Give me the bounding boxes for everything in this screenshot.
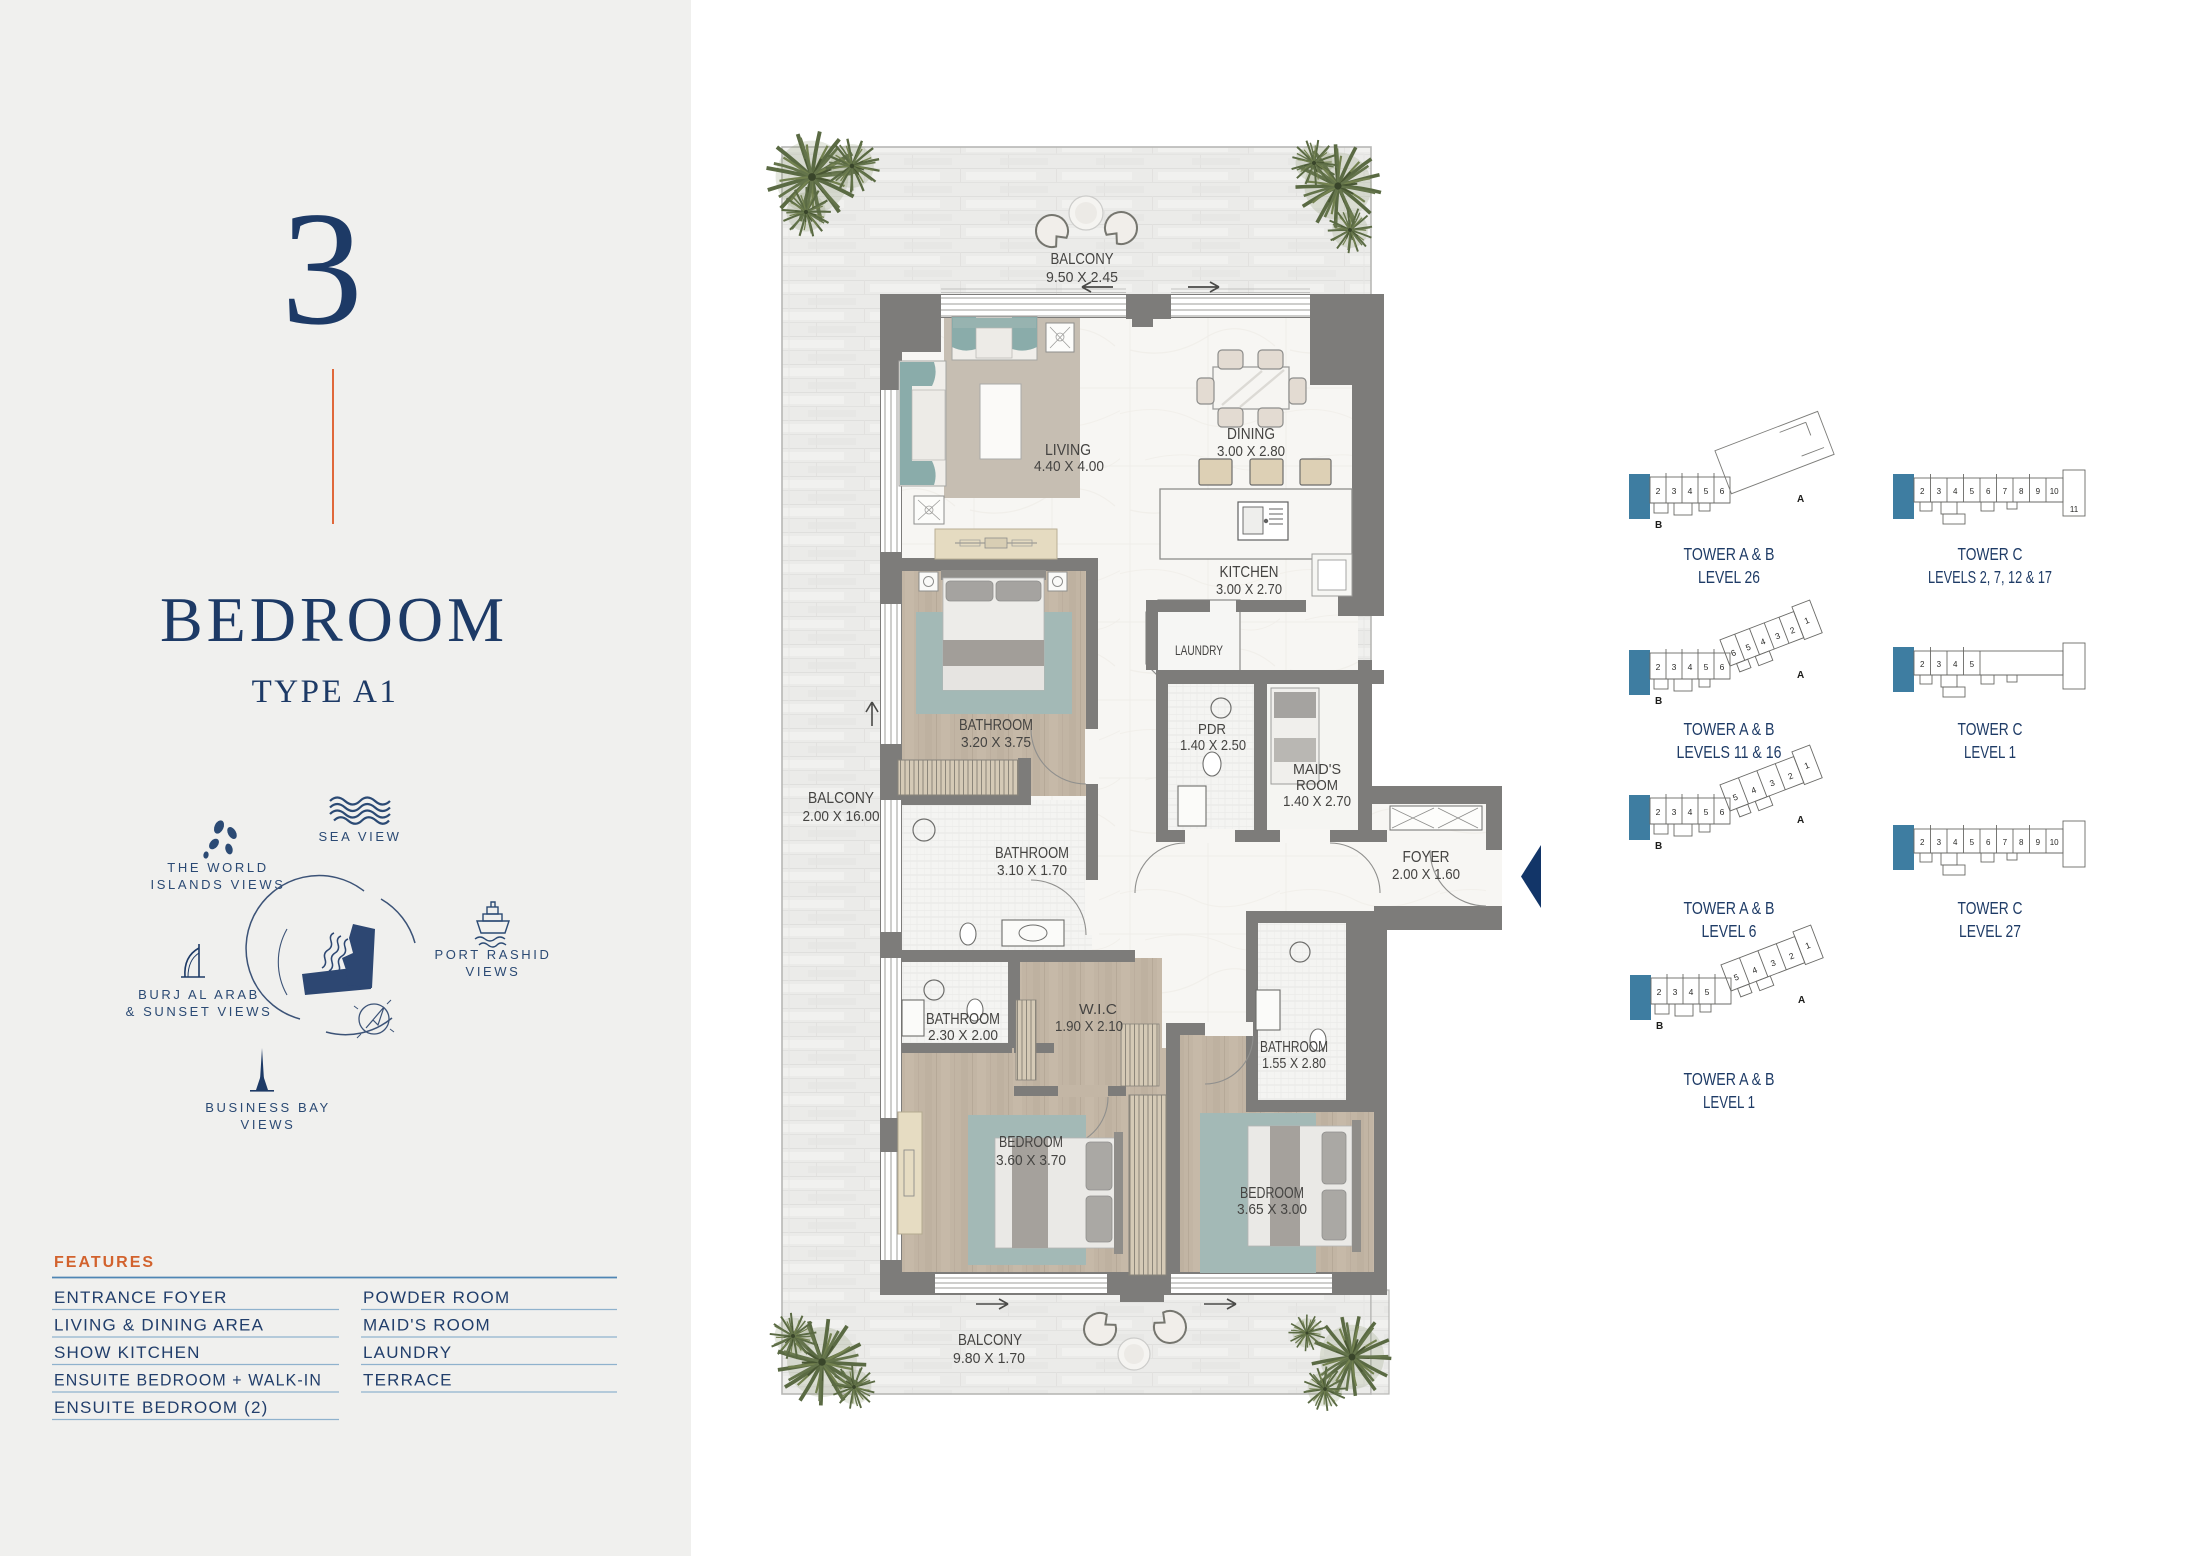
svg-text:& SUNSET VIEWS: & SUNSET VIEWS	[126, 1004, 273, 1019]
svg-text:2: 2	[1788, 950, 1796, 961]
svg-text:TOWER C: TOWER C	[1958, 544, 2023, 564]
svg-text:LEVEL 6: LEVEL 6	[1702, 921, 1757, 941]
svg-text:4: 4	[1688, 486, 1693, 496]
svg-text:ROOM: ROOM	[1296, 777, 1338, 794]
svg-text:4: 4	[1953, 838, 1958, 847]
svg-text:THE WORLD: THE WORLD	[167, 860, 268, 875]
svg-text:TOWER A & B: TOWER A & B	[1684, 1069, 1775, 1089]
svg-text:PDR: PDR	[1198, 721, 1226, 738]
svg-text:9.50 X 2.45: 9.50 X 2.45	[1046, 269, 1118, 286]
svg-text:B: B	[1655, 520, 1662, 531]
svg-text:BATHROOM: BATHROOM	[959, 717, 1033, 734]
svg-text:4: 4	[1688, 662, 1693, 672]
svg-text:BUSINESS BAY: BUSINESS BAY	[205, 1100, 331, 1115]
svg-text:A: A	[1797, 815, 1804, 826]
svg-text:1.55 X 2.80: 1.55 X 2.80	[1262, 1055, 1326, 1072]
svg-text:ENTRANCE FOYER: ENTRANCE FOYER	[54, 1288, 228, 1307]
svg-text:LIVING: LIVING	[1045, 442, 1091, 459]
svg-text:4.40 X 4.00: 4.40 X 4.00	[1034, 458, 1104, 475]
svg-text:3.60 X 3.70: 3.60 X 3.70	[996, 1152, 1066, 1169]
svg-text:LEVEL 27: LEVEL 27	[1959, 921, 2021, 941]
svg-text:5: 5	[1704, 662, 1709, 672]
svg-text:TOWER C: TOWER C	[1958, 898, 2023, 918]
svg-text:10: 10	[2050, 487, 2059, 496]
svg-text:W.I.C: W.I.C	[1079, 1001, 1117, 1018]
svg-text:BALCONY: BALCONY	[808, 790, 874, 807]
svg-text:2: 2	[1788, 625, 1796, 636]
svg-text:1: 1	[1804, 940, 1812, 951]
svg-text:LEVELS 2, 7, 12 & 17: LEVELS 2, 7, 12 & 17	[1928, 567, 2052, 587]
svg-text:7: 7	[2003, 838, 2008, 847]
svg-text:6: 6	[1986, 487, 1991, 496]
svg-text:4: 4	[1759, 636, 1767, 647]
svg-text:BATHROOM: BATHROOM	[1260, 1039, 1328, 1056]
svg-text:6: 6	[1720, 662, 1725, 672]
svg-text:2: 2	[1787, 770, 1795, 781]
svg-text:9: 9	[2036, 487, 2041, 496]
svg-text:MAID'S ROOM: MAID'S ROOM	[363, 1316, 491, 1335]
svg-text:TOWER A & B: TOWER A & B	[1684, 898, 1775, 918]
svg-text:2: 2	[1920, 660, 1925, 669]
svg-text:DINING: DINING	[1227, 426, 1275, 443]
svg-text:2.30 X 2.00: 2.30 X 2.00	[928, 1027, 998, 1044]
svg-text:LEVELS 11 & 16: LEVELS 11 & 16	[1677, 742, 1782, 762]
svg-text:FOYER: FOYER	[1403, 849, 1450, 866]
svg-text:4: 4	[1688, 807, 1693, 817]
svg-text:POWDER ROOM: POWDER ROOM	[363, 1288, 510, 1307]
svg-text:4: 4	[1750, 785, 1758, 796]
svg-text:SEA VIEW: SEA VIEW	[319, 829, 402, 844]
svg-text:7: 7	[2003, 487, 2008, 496]
svg-text:2: 2	[1656, 662, 1661, 672]
svg-text:A: A	[1797, 494, 1804, 505]
svg-text:5: 5	[1970, 487, 1975, 496]
svg-text:3: 3	[1769, 957, 1777, 968]
svg-text:5: 5	[1970, 660, 1975, 669]
svg-text:LAUNDRY: LAUNDRY	[1175, 642, 1223, 658]
svg-text:TERRACE: TERRACE	[363, 1371, 453, 1390]
svg-text:1.90 X 2.10: 1.90 X 2.10	[1055, 1019, 1123, 1035]
svg-text:VIEWS: VIEWS	[466, 964, 521, 979]
svg-text:BATHROOM: BATHROOM	[926, 1011, 1000, 1028]
svg-text:2.00 X 16.00: 2.00 X 16.00	[803, 808, 880, 825]
svg-text:3: 3	[1672, 807, 1677, 817]
svg-text:1.40 X 2.70: 1.40 X 2.70	[1283, 794, 1351, 810]
svg-text:2: 2	[1656, 807, 1661, 817]
svg-text:2: 2	[1920, 838, 1925, 847]
svg-text:MAID'S: MAID'S	[1293, 761, 1341, 778]
svg-text:3.00 X 2.80: 3.00 X 2.80	[1217, 443, 1285, 460]
svg-text:VIEWS: VIEWS	[241, 1117, 296, 1132]
svg-text:1.40 X 2.50: 1.40 X 2.50	[1180, 738, 1246, 754]
svg-text:LEVEL 26: LEVEL 26	[1698, 567, 1760, 587]
svg-text:PORT RASHID: PORT RASHID	[435, 947, 552, 962]
svg-text:LIVING & DINING AREA: LIVING & DINING AREA	[54, 1316, 264, 1335]
svg-text:FEATURES: FEATURES	[54, 1254, 155, 1271]
svg-text:5: 5	[1704, 807, 1709, 817]
svg-text:BEDROOM: BEDROOM	[999, 1134, 1063, 1151]
svg-text:5: 5	[1744, 642, 1752, 653]
svg-text:BALCONY: BALCONY	[958, 1332, 1022, 1349]
svg-text:3.20 X 3.75: 3.20 X 3.75	[961, 734, 1031, 751]
svg-text:5: 5	[1731, 792, 1739, 803]
svg-text:4: 4	[1953, 487, 1958, 496]
svg-text:3: 3	[1672, 662, 1677, 672]
svg-text:A: A	[1797, 670, 1804, 681]
svg-text:1: 1	[1803, 760, 1811, 771]
svg-text:3.00 X 2.70: 3.00 X 2.70	[1216, 581, 1282, 598]
svg-text:6: 6	[1720, 486, 1725, 496]
svg-text:3.65 X 3.00: 3.65 X 3.00	[1237, 1201, 1307, 1218]
svg-text:LEVEL 1: LEVEL 1	[1964, 742, 2016, 762]
svg-text:BATHROOM: BATHROOM	[995, 845, 1069, 862]
svg-text:LEVEL 1: LEVEL 1	[1703, 1092, 1755, 1112]
svg-text:3: 3	[1774, 630, 1782, 641]
svg-text:8: 8	[2019, 838, 2024, 847]
svg-text:5: 5	[1704, 486, 1709, 496]
svg-text:6: 6	[1729, 647, 1737, 658]
svg-text:TOWER A & B: TOWER A & B	[1684, 544, 1775, 564]
svg-text:ENSUITE BEDROOM (2): ENSUITE BEDROOM (2)	[54, 1398, 269, 1417]
svg-text:6: 6	[1720, 807, 1725, 817]
svg-text:B: B	[1655, 841, 1662, 852]
svg-text:8: 8	[2019, 487, 2024, 496]
svg-text:5: 5	[1705, 987, 1710, 997]
svg-text:6: 6	[1986, 838, 1991, 847]
svg-text:BURJ AL ARAB: BURJ AL ARAB	[138, 987, 260, 1002]
svg-text:TOWER A & B: TOWER A & B	[1684, 719, 1775, 739]
svg-text:3: 3	[1937, 487, 1942, 496]
svg-text:LAUNDRY: LAUNDRY	[363, 1343, 452, 1362]
svg-text:4: 4	[1953, 660, 1958, 669]
svg-text:3.10 X 1.70: 3.10 X 1.70	[997, 862, 1067, 879]
svg-text:3: 3	[1937, 660, 1942, 669]
svg-text:3: 3	[1673, 987, 1678, 997]
svg-text:3: 3	[1672, 486, 1677, 496]
svg-text:2: 2	[1656, 486, 1661, 496]
svg-text:5: 5	[1970, 838, 1975, 847]
svg-text:SHOW KITCHEN: SHOW KITCHEN	[54, 1343, 201, 1362]
svg-text:9: 9	[2036, 838, 2041, 847]
svg-text:4: 4	[1689, 987, 1694, 997]
svg-text:3: 3	[1937, 838, 1942, 847]
svg-text:9.80 X 1.70: 9.80 X 1.70	[953, 1350, 1025, 1367]
svg-text:B: B	[1656, 1021, 1663, 1032]
svg-text:TOWER C: TOWER C	[1958, 719, 2023, 739]
svg-text:1: 1	[1803, 615, 1811, 626]
svg-text:4: 4	[1751, 965, 1759, 976]
svg-text:KITCHEN: KITCHEN	[1220, 564, 1279, 581]
svg-text:10: 10	[2050, 838, 2059, 847]
svg-text:BALCONY: BALCONY	[1051, 251, 1114, 268]
svg-text:B: B	[1655, 696, 1662, 707]
svg-text:A: A	[1798, 995, 1805, 1006]
svg-text:ISLANDS VIEWS: ISLANDS VIEWS	[151, 877, 286, 892]
svg-text:2.00 X 1.60: 2.00 X 1.60	[1392, 866, 1460, 883]
svg-text:11: 11	[2070, 505, 2079, 514]
svg-text:5: 5	[1732, 972, 1740, 983]
svg-text:2: 2	[1657, 987, 1662, 997]
svg-text:2: 2	[1920, 487, 1925, 496]
svg-text:3: 3	[1768, 777, 1776, 788]
svg-text:ENSUITE BEDROOM + WALK-IN: ENSUITE BEDROOM + WALK-IN	[54, 1371, 322, 1390]
svg-text:BEDROOM: BEDROOM	[1240, 1185, 1304, 1202]
